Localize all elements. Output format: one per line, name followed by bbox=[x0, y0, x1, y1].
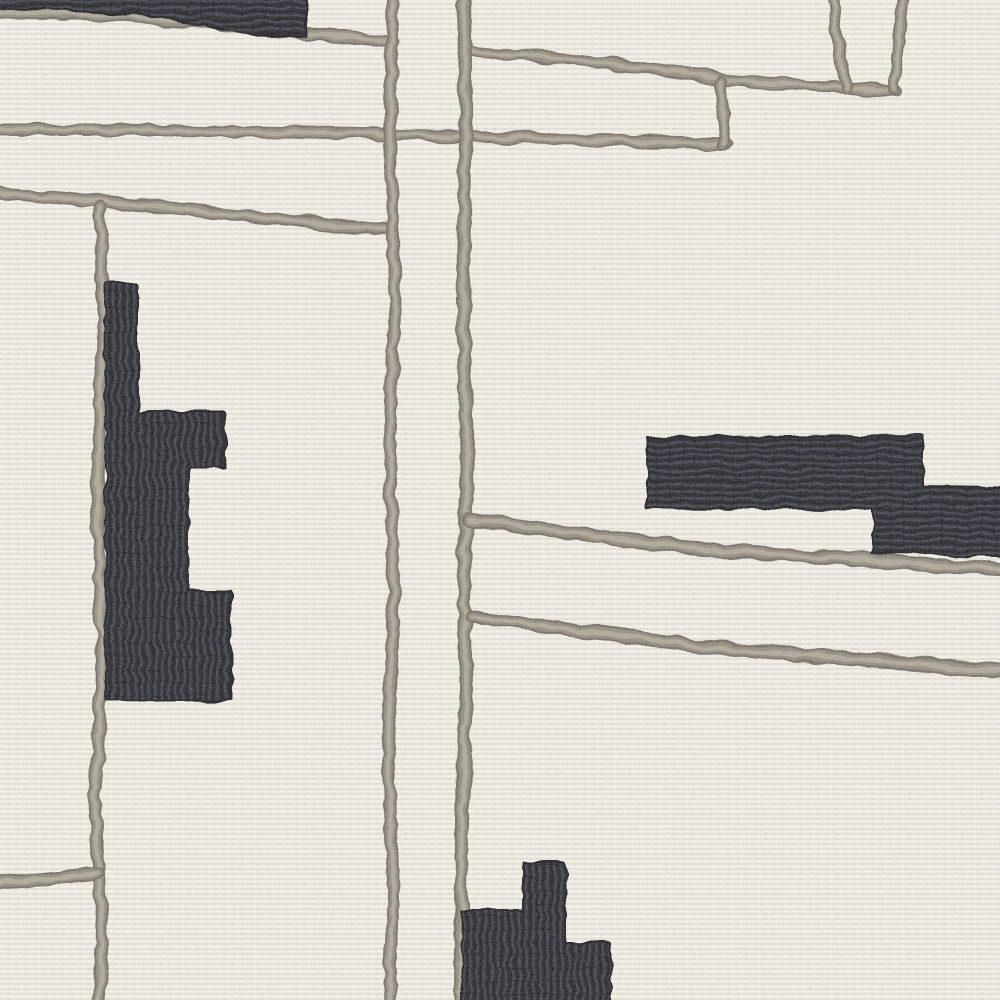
rug-photo bbox=[0, 0, 1000, 1000]
rug-svg bbox=[0, 0, 1000, 1000]
grain-overlay bbox=[0, 0, 1000, 1000]
